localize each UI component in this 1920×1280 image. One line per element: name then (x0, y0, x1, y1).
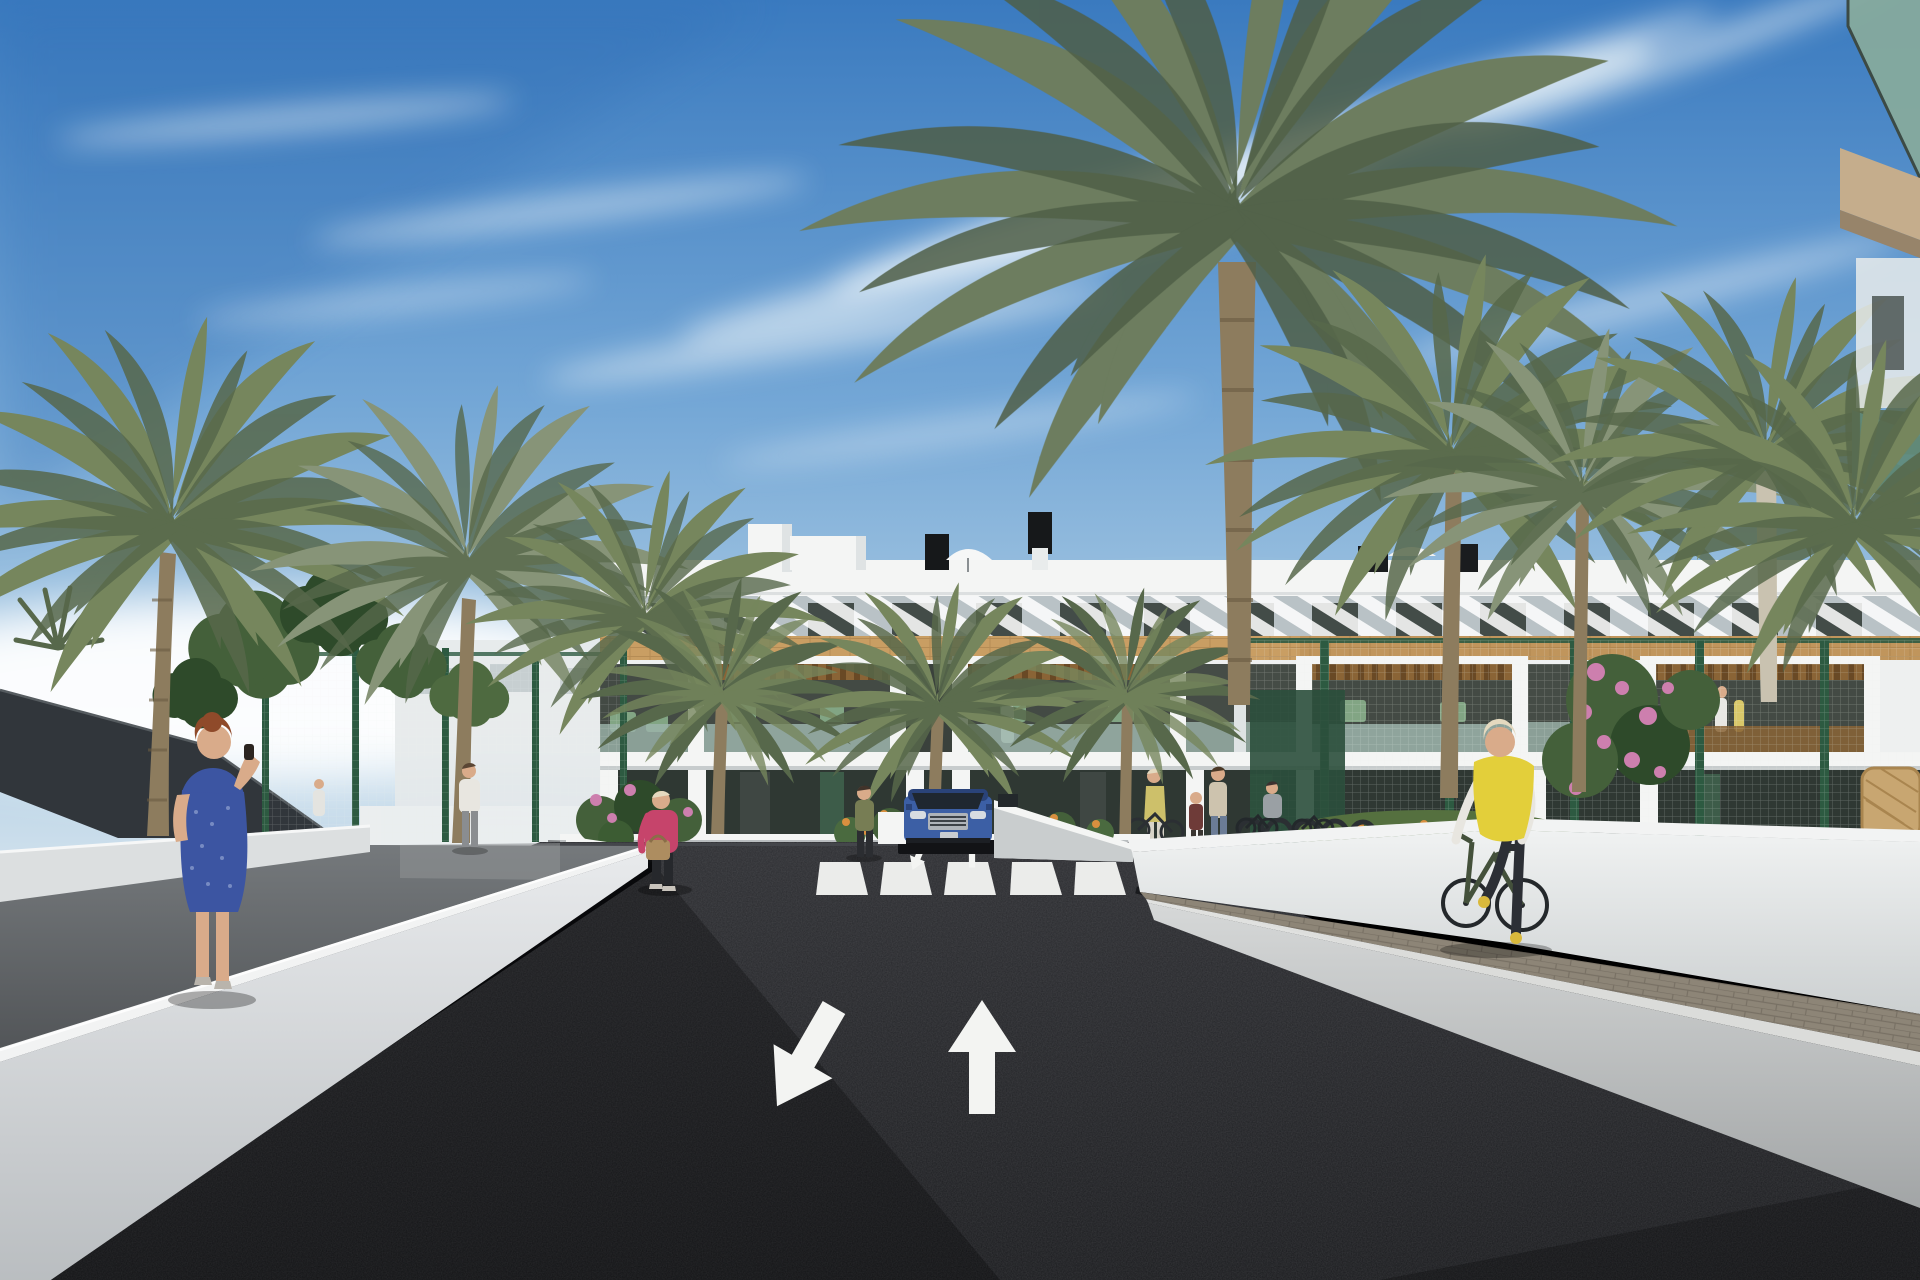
yellow-vest (1473, 756, 1534, 842)
chimney (925, 534, 949, 570)
ramp-sign (998, 794, 1018, 807)
architectural-render: Sunny 3D architectural rendering of a mo… (0, 0, 1920, 1280)
leg (216, 905, 229, 981)
cyclist-shoe (1510, 932, 1522, 944)
render-canvas: Sunny 3D architectural rendering of a mo… (0, 0, 1920, 1280)
blue-dress (180, 790, 247, 912)
suv-car (904, 789, 992, 843)
phone (244, 744, 254, 760)
cyclist-leg (1516, 838, 1520, 933)
distant-pedestrian (313, 779, 325, 816)
leg (196, 905, 209, 977)
headlight (970, 811, 986, 819)
cyclist-shoe (1478, 896, 1490, 908)
license-plate (940, 832, 958, 839)
chimney (1028, 512, 1052, 554)
headlight (910, 811, 926, 819)
wicker-chair (1862, 768, 1920, 838)
handbag (646, 840, 670, 860)
olive-top (855, 800, 874, 831)
